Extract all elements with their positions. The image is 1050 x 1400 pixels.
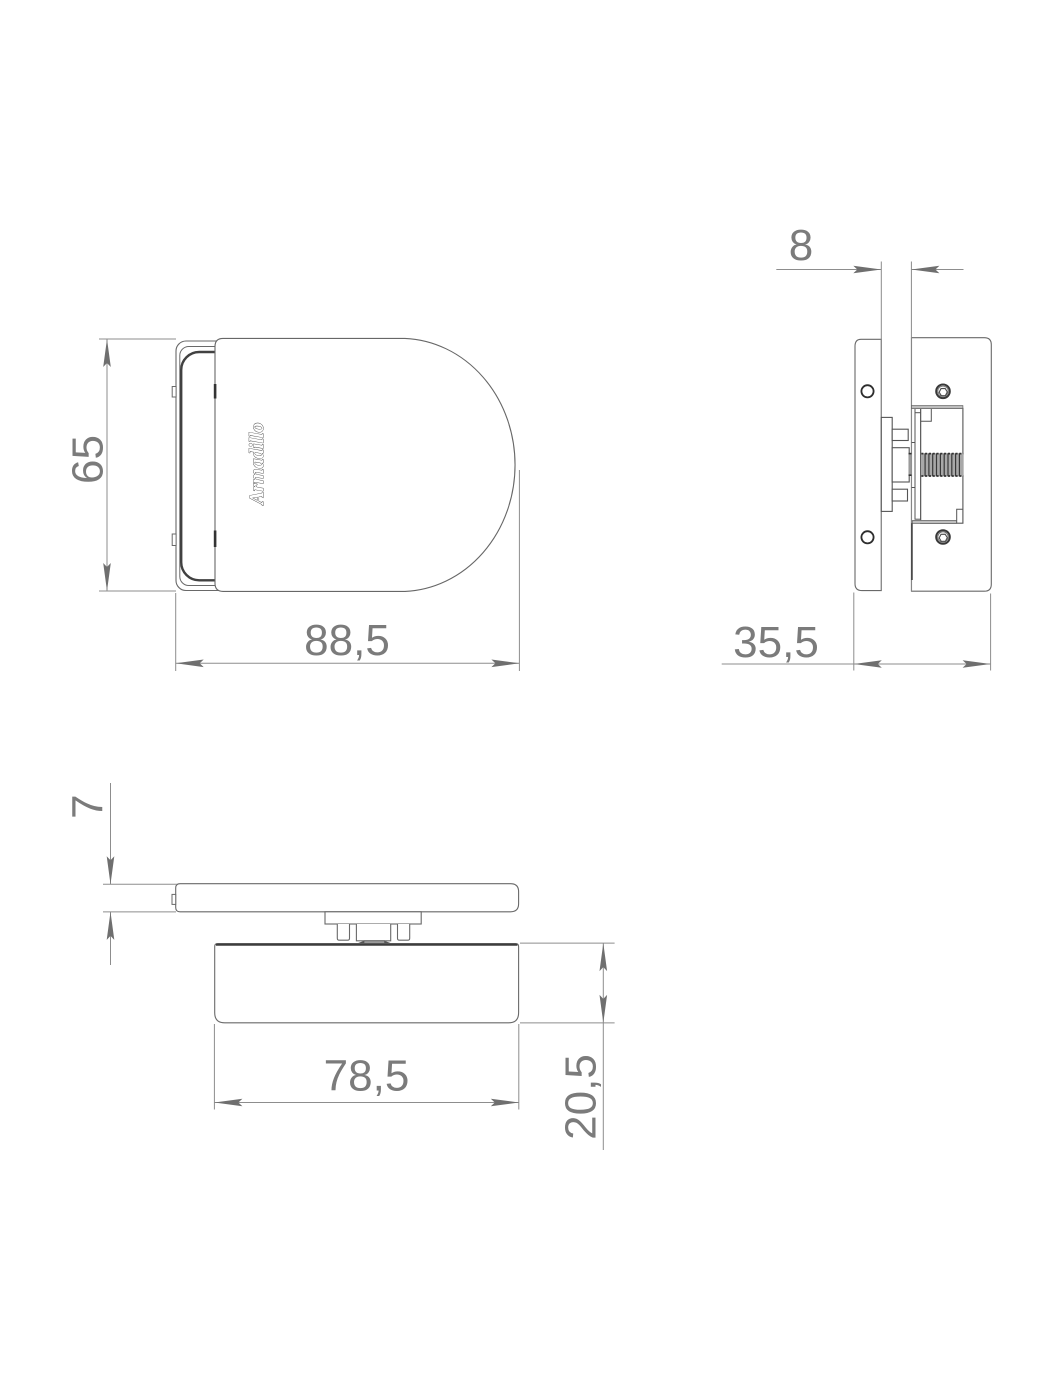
svg-text:7: 7 xyxy=(63,794,112,818)
svg-text:35,5: 35,5 xyxy=(733,618,819,667)
svg-text:78,5: 78,5 xyxy=(324,1052,410,1101)
svg-text:65: 65 xyxy=(64,435,113,484)
svg-text:88,5: 88,5 xyxy=(304,616,390,665)
svg-text:8: 8 xyxy=(789,221,813,270)
svg-text:Armadillo: Armadillo xyxy=(246,423,268,507)
svg-text:20,5: 20,5 xyxy=(557,1054,606,1140)
